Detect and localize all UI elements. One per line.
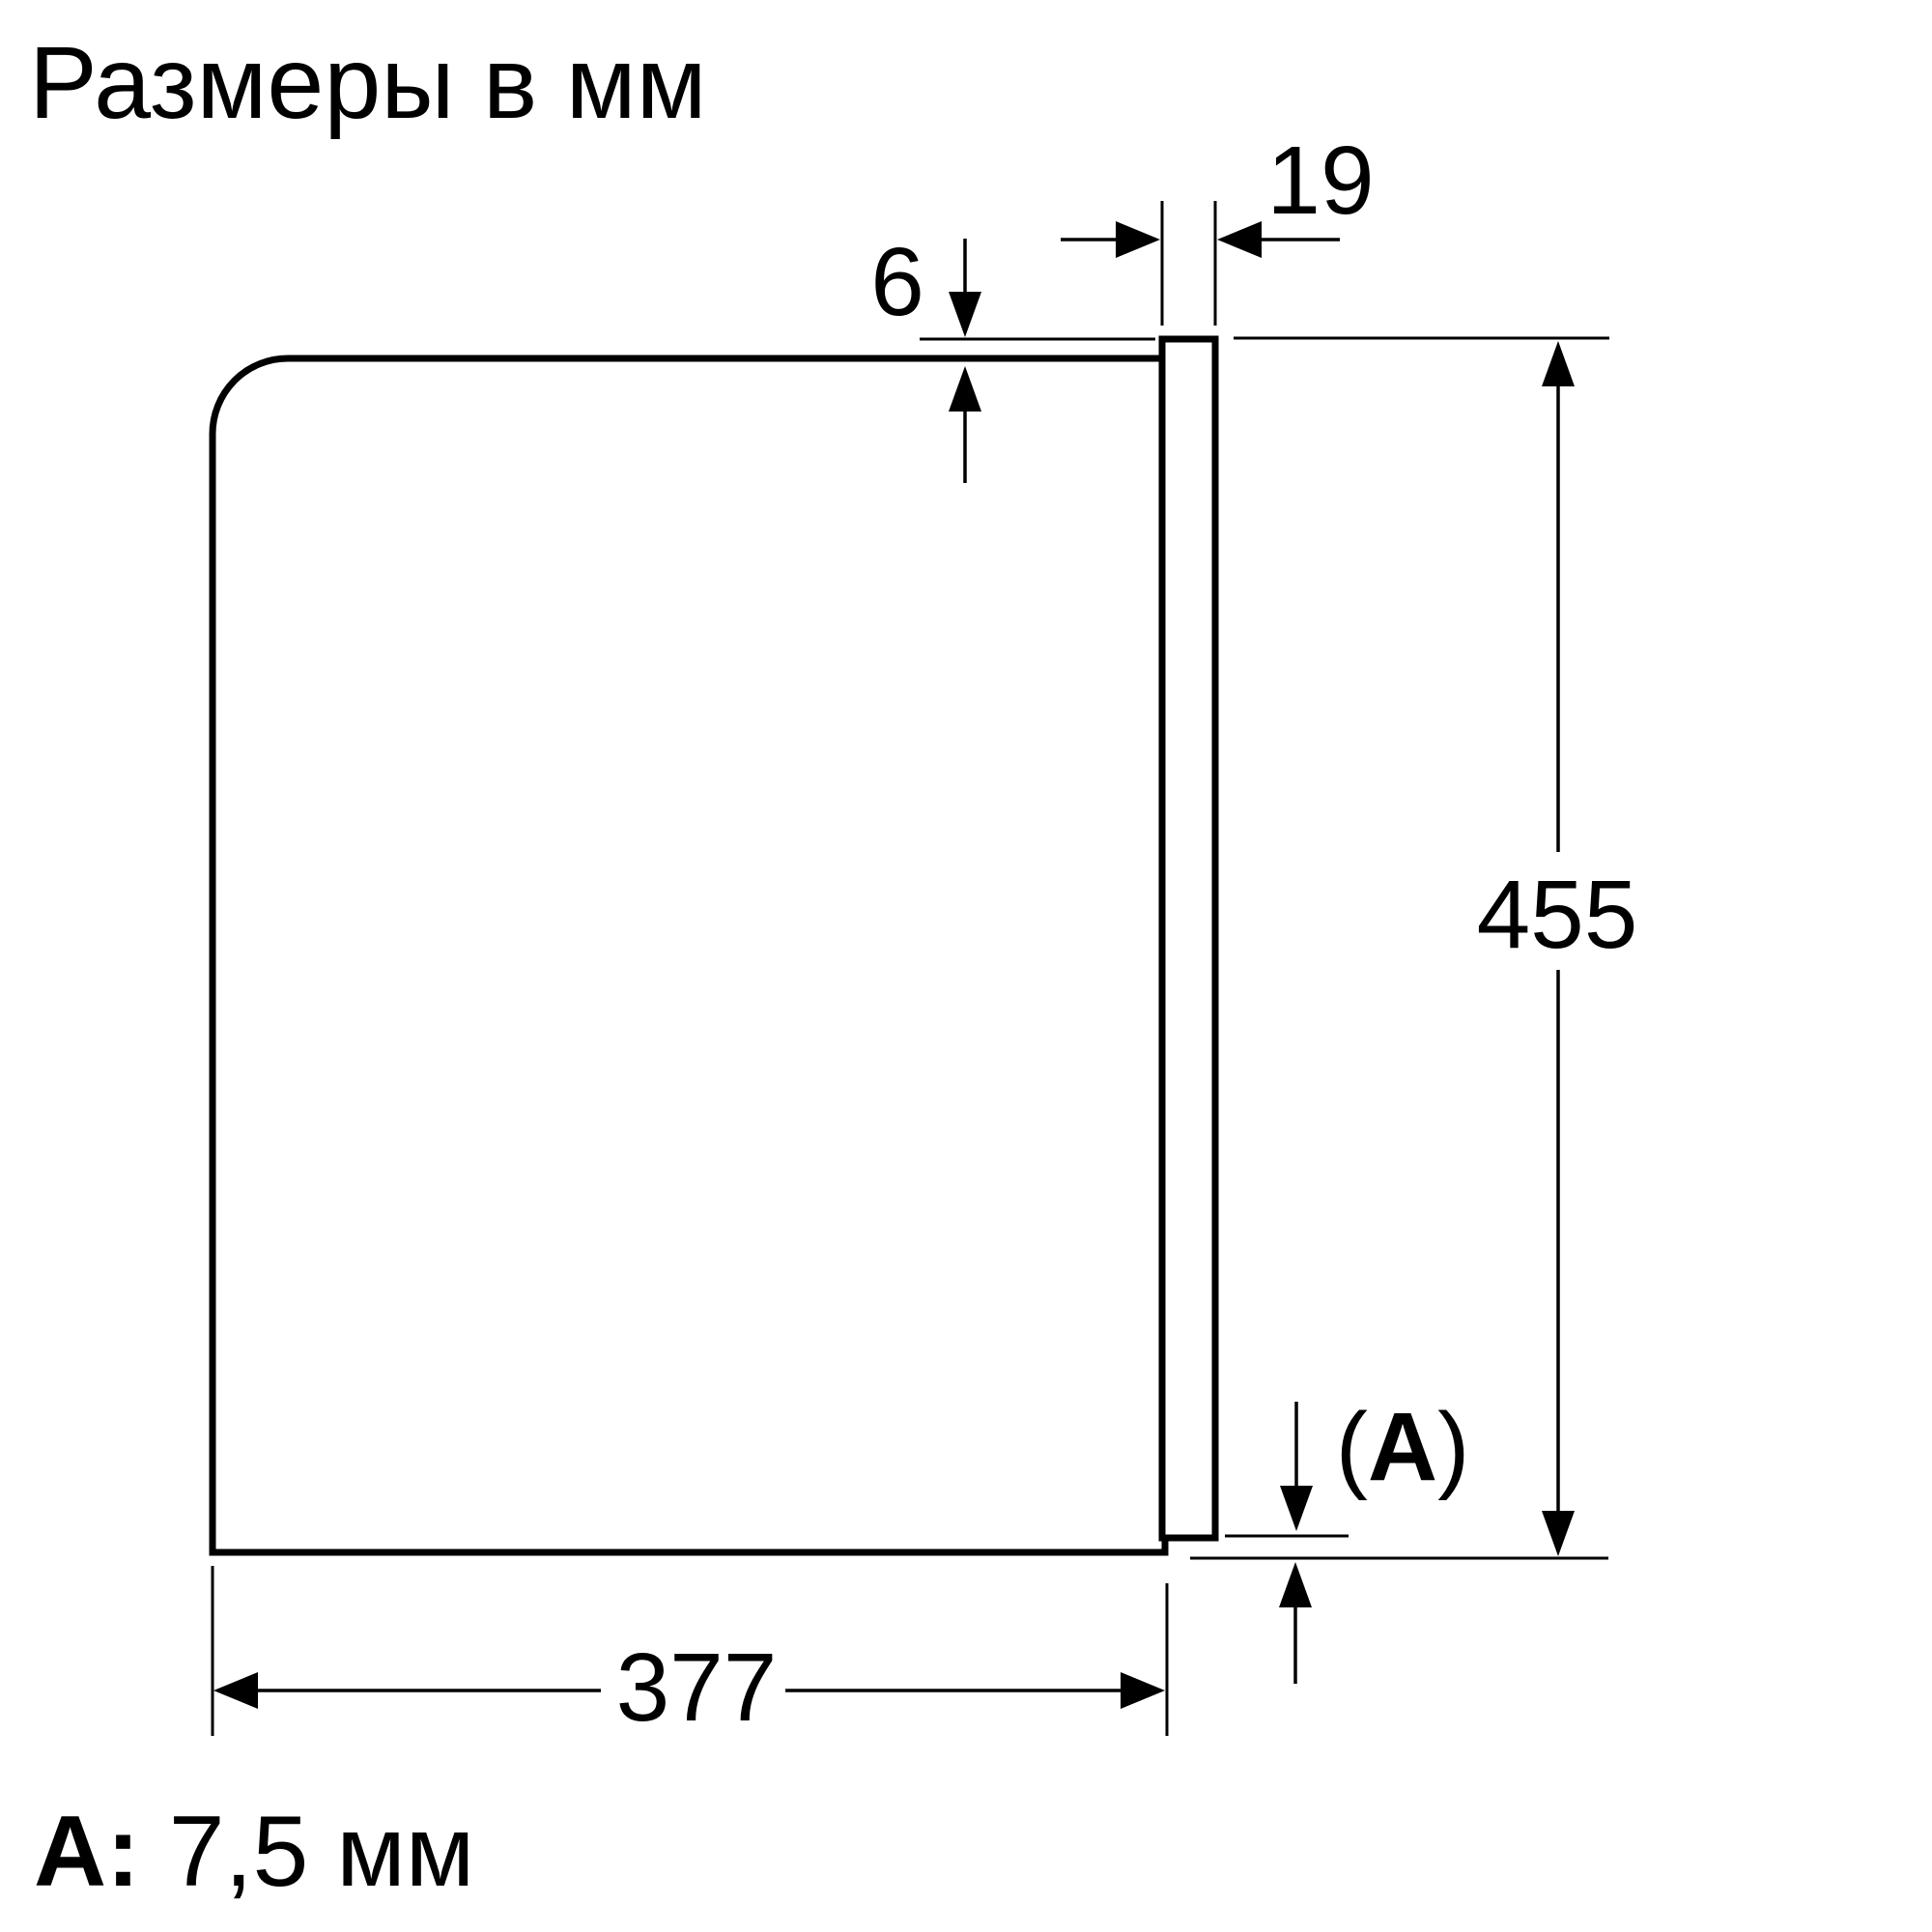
dimension-depth: 377 [213, 1634, 1165, 1742]
appliance-dimension-diagram: 19 6 455 377 [0, 0, 1932, 1932]
arrowhead-right-icon [1116, 221, 1160, 258]
arrowhead-left-icon [1217, 221, 1262, 258]
a-note-value: 7,5 мм [169, 1796, 474, 1908]
arrowhead-up-icon [1542, 341, 1575, 386]
arrowhead-down-icon [949, 292, 981, 337]
a-gap-letter: A [1368, 1393, 1437, 1501]
door-panel [1162, 339, 1215, 1538]
door-thickness-label: 19 [1266, 127, 1374, 235]
height-label: 455 [1477, 861, 1638, 969]
a-gap-close-paren: ) [1437, 1393, 1469, 1501]
arrowhead-right-icon [1121, 1672, 1165, 1709]
arrowhead-up-icon [1279, 1562, 1312, 1607]
appliance-body-outline [213, 358, 1165, 1552]
arrowhead-left-icon [213, 1672, 258, 1709]
depth-label: 377 [616, 1634, 778, 1742]
door-top-overhang-label: 6 [870, 228, 924, 336]
arrowhead-up-icon [949, 366, 981, 412]
a-note-label: A: [34, 1796, 140, 1908]
a-value-note: A:7,5 мм [34, 1796, 474, 1908]
page-title: Размеры в мм [29, 26, 706, 140]
a-gap-open-paren: ( [1336, 1393, 1368, 1501]
arrowhead-down-icon [1280, 1486, 1313, 1531]
arrowhead-down-icon [1542, 1511, 1575, 1556]
reference-lines [213, 201, 1609, 1736]
dimension-door-thickness: 19 [1061, 127, 1375, 258]
a-gap-label: (A) [1336, 1393, 1470, 1501]
dimension-height: 455 [1477, 341, 1638, 1556]
page: 19 6 455 377 [0, 0, 1932, 1932]
dimension-a-gap: (A) [1279, 1393, 1469, 1684]
